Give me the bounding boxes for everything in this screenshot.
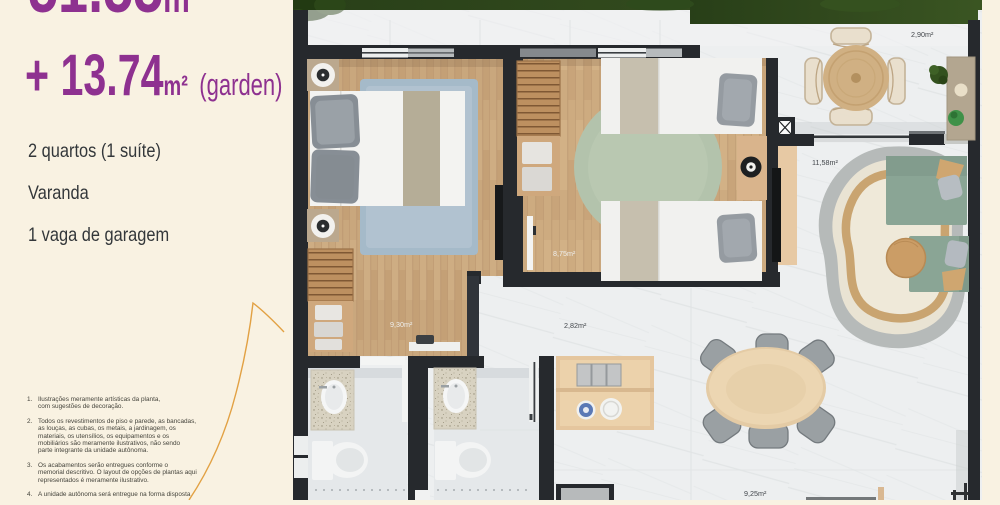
svg-text:9,30m²: 9,30m² <box>390 320 413 329</box>
svg-text:11,58m²: 11,58m² <box>812 158 838 167</box>
svg-text:9,25m²: 9,25m² <box>744 489 767 498</box>
svg-text:2,82m²: 2,82m² <box>564 321 587 330</box>
svg-text:8,75m²: 8,75m² <box>553 249 576 258</box>
svg-text:2,90m²: 2,90m² <box>911 30 934 39</box>
